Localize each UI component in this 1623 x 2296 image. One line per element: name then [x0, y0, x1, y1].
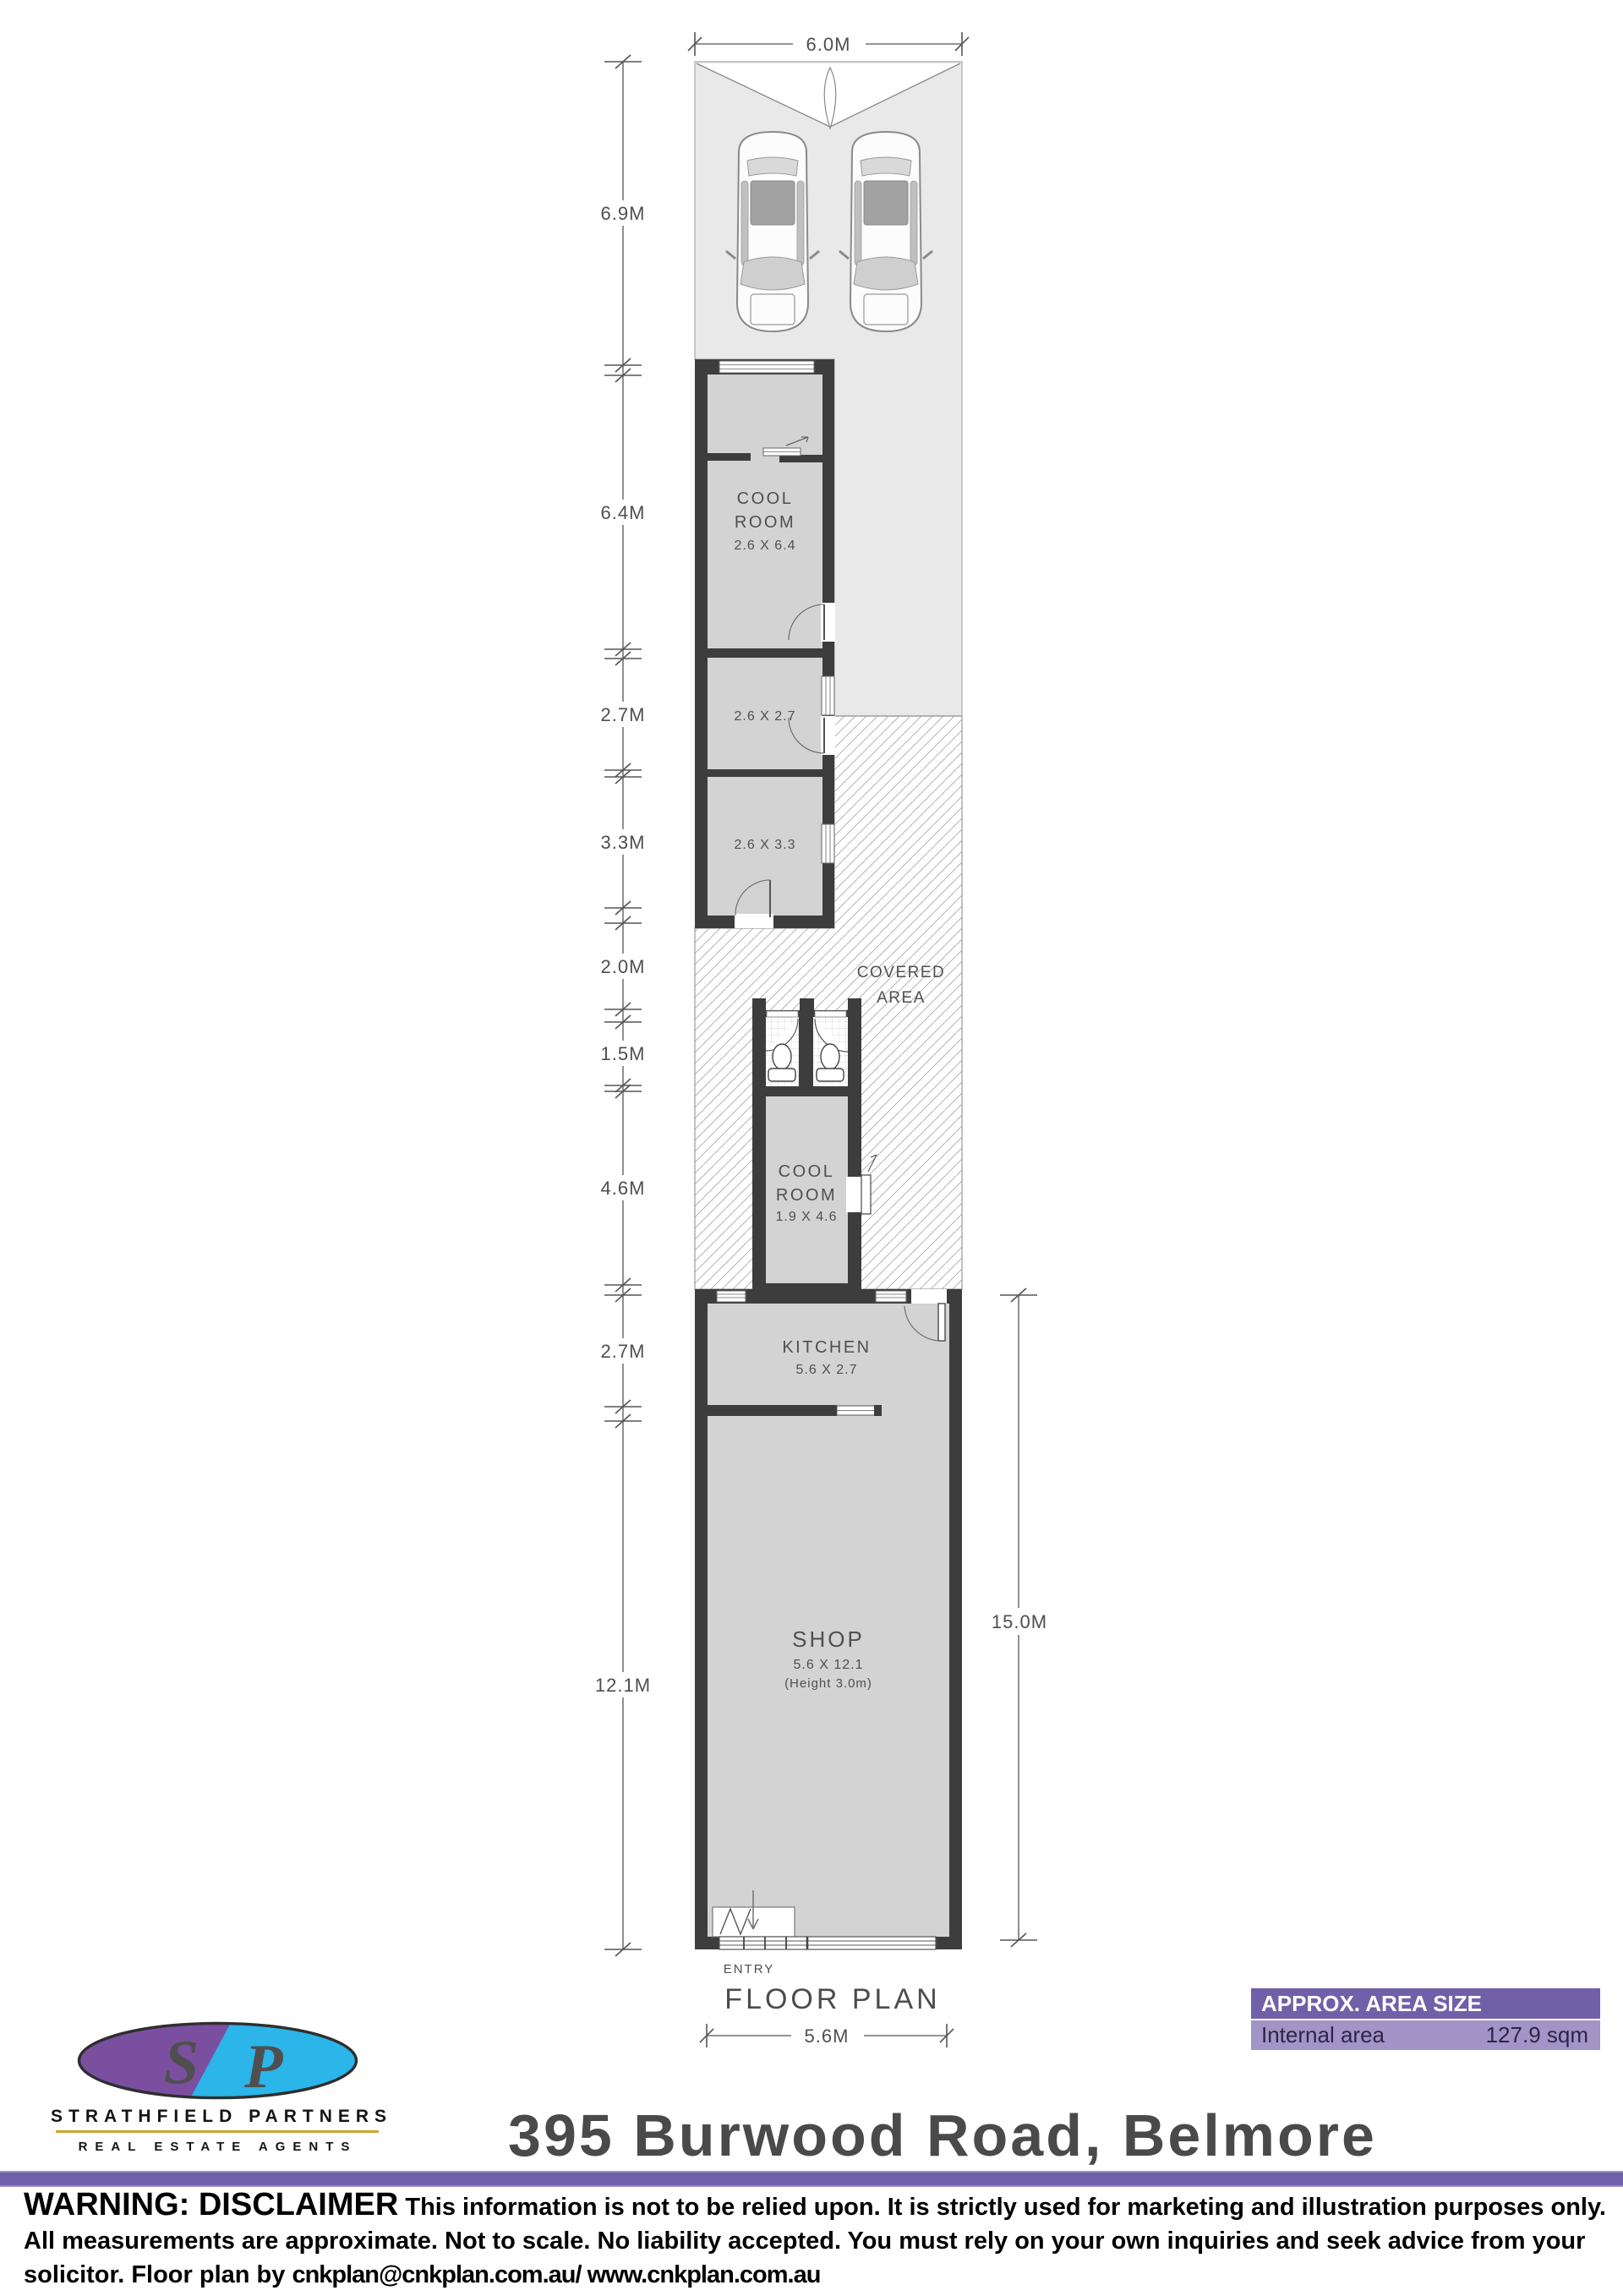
- disclaimer-text: solicitor. Floor plan by: [24, 2261, 292, 2288]
- area-size-value: 127.9 sqm: [1486, 2020, 1588, 2050]
- agency-logo-icon: S P: [72, 2020, 363, 2101]
- dim-bottom-label: 5.6M: [805, 2025, 850, 2047]
- window-icon: [822, 676, 834, 715]
- kitchen-shop-divider: [695, 1405, 882, 1416]
- covered-area-label: AREA: [877, 989, 926, 1007]
- window-icon: [822, 824, 834, 863]
- store-room-1-size: 2.6 X 2.7: [734, 709, 795, 724]
- dim-left-label: 2.7M: [601, 704, 646, 725]
- disclaimer-warning: WARNING: DISCLAIMER: [24, 2187, 398, 2222]
- covered-area-label: COVERED: [857, 964, 945, 981]
- cool-room-2-size: 1.9 X 4.6: [775, 1210, 837, 1224]
- dimension-left: 6.9M 6.4M 2.7M 3.3M 2.0M 1.5M 4.6M 2.7M …: [583, 55, 663, 1956]
- store-room-2-size: 2.6 X 3.3: [734, 838, 795, 852]
- dim-left-label: 2.0M: [601, 956, 646, 977]
- shop-size: 5.6 X 12.1: [794, 1658, 864, 1672]
- disclaimer-line-2: All measurements are approximate. Not to…: [24, 2224, 1613, 2258]
- shop-height-note: (Height 3.0m): [784, 1676, 872, 1691]
- dim-top-label: 6.0M: [806, 34, 851, 55]
- cool-room-2-label: COOL: [779, 1162, 835, 1181]
- cool-room-1-label: ROOM: [735, 513, 795, 532]
- wc-stall: [813, 1011, 848, 1086]
- car-icon: [839, 132, 932, 331]
- shop-label: SHOP: [792, 1626, 865, 1652]
- main-building: KITCHEN 5.6 X 2.7 SHOP 5.6 X 12.1 (Heigh…: [695, 1289, 962, 1949]
- window-icon: [719, 361, 814, 373]
- page: COVERED AREA COOL ROOM 2.6 X 6.4: [0, 0, 1623, 2296]
- toilet-coolroom-block: COOL ROOM 1.9 X 4.6: [752, 998, 877, 1293]
- shopfront-window: [719, 1937, 936, 1949]
- entry-label: ENTRY: [724, 1962, 775, 1976]
- outbuilding-block: COOL ROOM 2.6 X 6.4 2.6 X 2.7: [695, 359, 835, 928]
- area-size-label: Internal area: [1261, 2022, 1385, 2047]
- dim-left-label: 3.3M: [601, 832, 646, 853]
- logo-letter-s: S: [164, 2028, 199, 2098]
- dim-left-label: 6.4M: [601, 502, 646, 523]
- area-size-header: APPROX. AREA SIZE: [1251, 1988, 1600, 2019]
- dimension-bottom: 5.6M: [700, 2024, 954, 2047]
- dim-left-label: 12.1M: [595, 1675, 651, 1696]
- area-size-row: Internal area 127.9 sqm: [1251, 2020, 1600, 2050]
- dimension-top: 6.0M: [688, 32, 969, 56]
- window-icon: [717, 1291, 746, 1302]
- disclaimer-line-1: WARNING: DISCLAIMER This information is …: [24, 2188, 1613, 2224]
- window-icon: [876, 1291, 906, 1302]
- agency-tagline: REAL ESTATE AGENTS: [51, 2140, 385, 2154]
- cool-room-1-label: COOL: [737, 489, 794, 508]
- logo-letter-p: P: [243, 2031, 284, 2101]
- disclaimer-contact: cnkplan@cnkplan.com.au/ www.cnkplan.com.…: [292, 2261, 820, 2288]
- dim-left-label: 1.5M: [601, 1043, 646, 1064]
- dim-left-label: 6.9M: [601, 203, 646, 224]
- dim-left-label: 4.6M: [601, 1178, 646, 1199]
- dim-left-label: 2.7M: [601, 1341, 646, 1362]
- divider-bar: [0, 2171, 1623, 2187]
- area-size-box: APPROX. AREA SIZE Internal area 127.9 sq…: [1251, 1988, 1600, 2050]
- agency-name: STRATHFIELD PARTNERS: [51, 2107, 385, 2127]
- floor-plan: COVERED AREA COOL ROOM 2.6 X 6.4: [0, 0, 1623, 2096]
- kitchen-label: KITCHEN: [782, 1338, 871, 1357]
- kitchen-size: 5.6 X 2.7: [795, 1363, 857, 1377]
- wc-stall: [766, 1011, 799, 1086]
- cool-room-1-size: 2.6 X 6.4: [734, 538, 795, 553]
- disclaimer-text: This information is not to be relied upo…: [405, 2194, 1606, 2221]
- disclaimer: WARNING: DISCLAIMER This information is …: [24, 2188, 1613, 2292]
- logo-gold-rule: [56, 2130, 379, 2133]
- car-icon: [726, 132, 819, 331]
- dim-right-label: 15.0M: [992, 1611, 1047, 1632]
- cool-room-2-label: ROOM: [776, 1186, 837, 1205]
- disclaimer-line-3: solicitor. Floor plan by cnkplan@cnkplan…: [24, 2258, 1613, 2292]
- dimension-right: 15.0M: [992, 1288, 1047, 1947]
- property-address-title: 395 Burwood Road, Belmore: [456, 2102, 1429, 2169]
- floor-plan-title: FLOOR PLAN: [724, 1983, 940, 2015]
